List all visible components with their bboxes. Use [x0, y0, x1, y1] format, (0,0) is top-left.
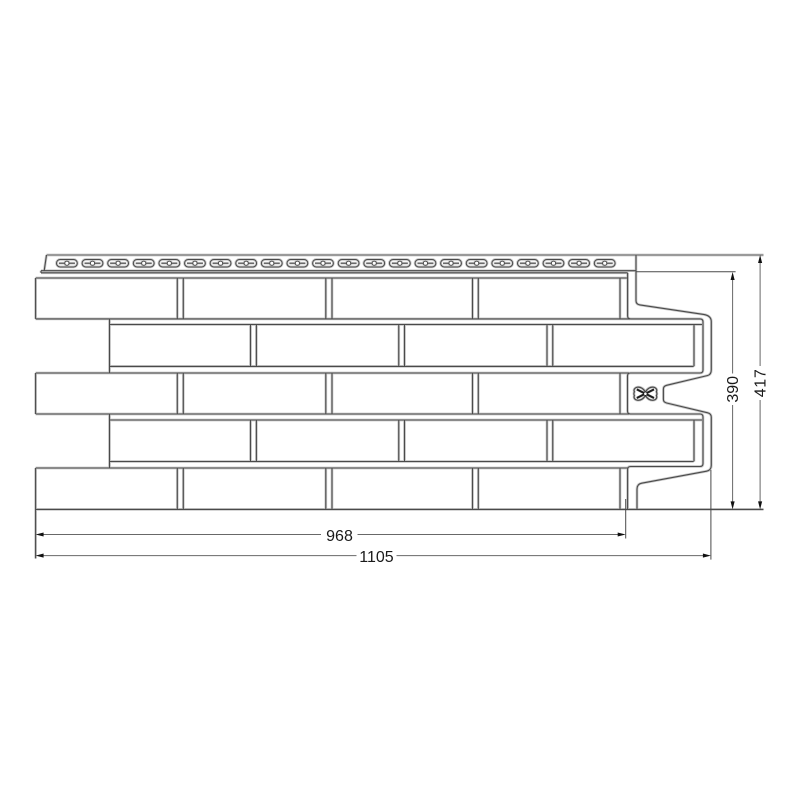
svg-text:390: 390 — [725, 376, 742, 403]
svg-text:968: 968 — [326, 528, 353, 545]
svg-text:417: 417 — [752, 369, 769, 398]
svg-text:1105: 1105 — [359, 549, 394, 566]
